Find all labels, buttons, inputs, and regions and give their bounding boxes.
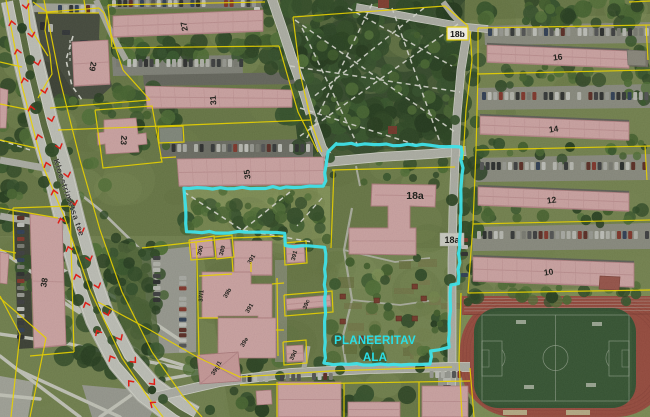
- svg-text:18b: 18b: [450, 29, 465, 39]
- svg-text:PLANEERITAV: PLANEERITAV: [334, 335, 416, 347]
- svg-text:ALA: ALA: [363, 352, 387, 364]
